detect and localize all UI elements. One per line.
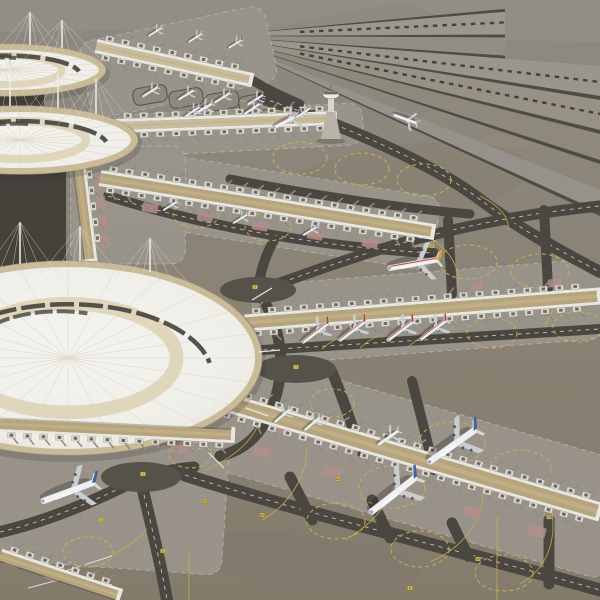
gate-door [463, 316, 467, 319]
gate-door [285, 196, 289, 200]
gate-door [58, 436, 62, 439]
gate-door [203, 204, 207, 208]
gate-door [398, 298, 402, 301]
gate-door [270, 308, 274, 311]
gate-door [446, 295, 450, 298]
taxiway-sign: B [429, 244, 434, 248]
taxiway-sign-label: K [254, 285, 256, 289]
gate-door [573, 285, 577, 288]
gate-door [169, 441, 173, 444]
gate-door [447, 317, 451, 320]
gate-door [158, 113, 162, 116]
gate-door [270, 128, 274, 131]
gate-door [185, 442, 189, 445]
taxiway-sign: J [293, 365, 298, 369]
gate-door [412, 216, 416, 220]
gate-door [272, 330, 276, 333]
gate-door [270, 109, 274, 112]
gate-door [282, 217, 286, 221]
airport-3d-render: KJJFF5E2DC4E4GD2B [0, 0, 600, 600]
gate-door [317, 201, 321, 205]
gate-door [94, 220, 97, 224]
taxiway-sign-label: E2 [260, 513, 264, 517]
taxiway-sign: G [98, 518, 103, 522]
gate-door [557, 286, 561, 289]
gate-door [174, 112, 178, 115]
taxiway-sign-label: B [431, 244, 433, 248]
gate-door [350, 302, 354, 305]
gate-door [96, 236, 99, 240]
taxiway-sign: D2 [475, 557, 480, 561]
gate-door [377, 232, 381, 236]
gate-door [153, 440, 157, 443]
gate-door [559, 309, 563, 312]
gate-door [142, 133, 146, 136]
gate-door [238, 130, 242, 133]
gate-door [302, 127, 306, 130]
gate-door [90, 437, 94, 440]
taxiway-sign-label: E4 [336, 477, 340, 481]
gate-door [380, 211, 384, 215]
gate-door [187, 201, 191, 205]
gate-door [318, 304, 322, 307]
gate-door [527, 311, 531, 314]
gate-door [206, 183, 210, 187]
gate-door [254, 190, 258, 194]
gate-door [222, 185, 226, 189]
taxiway-sign-label: D2 [476, 557, 480, 561]
gate-door [127, 170, 131, 174]
gate-door [336, 326, 340, 329]
gate-blast-pad [96, 195, 107, 209]
gate-door [361, 230, 365, 234]
gate-door [543, 310, 547, 313]
gate-door [286, 307, 290, 310]
gate-door [234, 209, 238, 213]
gate-door [222, 111, 226, 114]
gate-door [270, 193, 274, 197]
gate-door [42, 435, 46, 438]
gate-door [266, 214, 270, 218]
taxiway-sign: J [140, 472, 145, 476]
gate-door [392, 235, 396, 239]
gate-door [137, 440, 141, 443]
gate-door [286, 108, 290, 111]
gate-door [298, 219, 302, 223]
gate-door [430, 296, 434, 299]
gate-door [334, 303, 338, 306]
gate-door [108, 189, 112, 193]
gate-door [575, 307, 579, 310]
gate-door [159, 175, 163, 179]
gate-door [174, 132, 178, 135]
taxiway-sign-label: F [162, 549, 164, 553]
gate-door [254, 309, 258, 312]
gate-door [254, 129, 258, 132]
gate-door [238, 110, 242, 113]
gate-door [396, 213, 400, 217]
taxiway-sign-label: F5 [203, 499, 207, 503]
gate-door [191, 180, 195, 184]
gate-door [219, 207, 223, 211]
gate-door [318, 107, 322, 110]
gate-door [222, 130, 226, 133]
gate-door [286, 128, 290, 131]
gate-blast-pad [100, 235, 111, 249]
taxiway-lane [448, 220, 452, 294]
gate-door [10, 434, 14, 437]
taxiway-sign: E4 [335, 477, 340, 481]
gate-door [142, 114, 146, 117]
gate-door [478, 292, 482, 295]
pier-end-cap [231, 427, 236, 443]
gate-door [541, 287, 545, 290]
gate-door [479, 315, 483, 318]
gate-door [494, 291, 498, 294]
gate-door [333, 203, 337, 207]
taxiway-lane [544, 210, 548, 288]
gate-door [201, 443, 205, 446]
gate-door [288, 329, 292, 332]
gate-door [329, 224, 333, 228]
holding-pad [101, 462, 181, 492]
gate-door [238, 188, 242, 192]
gate-door [90, 188, 93, 192]
gate-door [495, 313, 499, 316]
gate-door [382, 299, 386, 302]
gate-door [384, 322, 388, 325]
gate-door [301, 198, 305, 202]
gate-door [121, 439, 125, 442]
gate-door [106, 438, 110, 441]
gate-door [414, 297, 418, 300]
taxiway-sign: F5 [202, 499, 207, 503]
gate-door [408, 237, 412, 241]
gate-door [92, 204, 95, 208]
scene-svg: KJJFF5E2DC4E4GD2B [0, 0, 600, 600]
gate-door [415, 319, 419, 322]
gate-door [143, 173, 147, 177]
taxiway-sign: F [160, 549, 165, 553]
gate-door [206, 131, 210, 134]
gate-door [124, 191, 128, 195]
gate-door [206, 111, 210, 114]
gate-door [217, 443, 221, 446]
taxiway-sign: E2 [259, 513, 264, 517]
taxiway-sign: D [407, 586, 412, 590]
tower-cab-band [324, 92, 338, 95]
gate-door [190, 131, 194, 134]
gate-door [509, 290, 513, 293]
gate-door [348, 206, 352, 210]
gate-door [26, 434, 30, 437]
gate-door [302, 306, 306, 309]
gate-door [158, 133, 162, 136]
gate-door [74, 437, 78, 440]
gate-door [318, 127, 322, 130]
gate-door [366, 301, 370, 304]
gate-door [345, 227, 349, 231]
gate-door [304, 328, 308, 331]
gate-door [250, 212, 254, 216]
taxiway-sign: K [252, 285, 257, 289]
gate-door [525, 289, 529, 292]
gate-door [462, 293, 466, 296]
gate-door [364, 208, 368, 212]
gate-door [175, 178, 179, 182]
holding-pad [220, 277, 296, 303]
gate-door [156, 196, 160, 200]
gate-door [511, 312, 515, 315]
gate-door [140, 194, 144, 198]
